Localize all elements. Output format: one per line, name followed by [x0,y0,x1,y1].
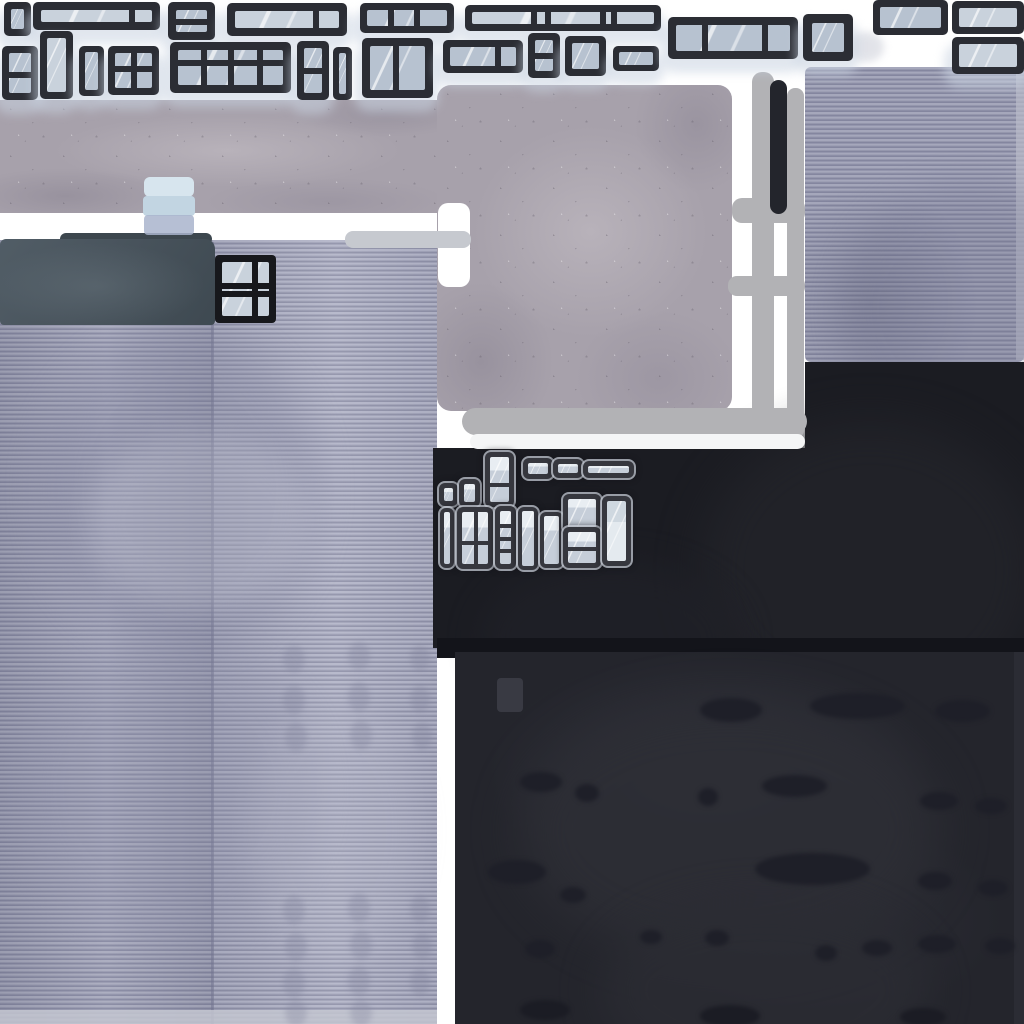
window-sprite [333,47,352,100]
window-glass [472,12,654,24]
window-sprite [952,37,1024,74]
siding-rivet-spot [350,720,372,750]
window-mullion-vertical [531,12,537,24]
siding-rivet-spot [410,685,430,713]
window-sprite [803,14,853,61]
window-mullion-horizontal [500,524,511,528]
siding-shading [90,430,310,610]
window-glass [85,52,98,90]
texture-atlas-canvas [0,0,1024,1024]
asphalt-blob [815,945,837,961]
window-glass [676,25,790,51]
window-glass [544,516,559,564]
window-sprite [952,1,1024,34]
asphalt-blob [520,772,562,792]
window-mullion-horizontal [500,549,511,553]
window-mullion-vertical [228,50,234,85]
asphalt-blob [525,940,555,958]
window-sprite [613,46,659,71]
window-glass [558,464,578,473]
window-mullion-vertical [257,50,263,85]
window-sprite [297,41,329,100]
asphalt-blob [918,935,956,953]
small-window-sprite [440,508,454,568]
window-sprite [873,0,948,35]
siding-rivet-spot [348,642,370,670]
asphalt-blob [985,938,1015,954]
window-sprite [443,40,523,73]
siding-rivet-spot [283,645,305,673]
window-sprite [362,38,433,98]
rooftop-unit-mid [143,196,195,216]
siding-rivet-spot [348,893,370,923]
window-glass [339,53,346,94]
window-sprite [108,46,159,95]
window-glass [444,512,450,564]
window-mullion-horizontal [9,72,31,78]
siding-rivet-spot [283,685,305,715]
concrete-band-top-left [0,100,437,213]
window-glass [880,7,941,28]
asphalt-blob [700,698,762,722]
window-mullion-horizontal [462,541,488,545]
small-window-sprite [602,496,631,566]
window-glass [235,11,339,28]
asphalt-blob [762,775,827,797]
siding-rivet-spot [350,930,372,960]
window-glass [568,499,596,528]
asphalt-blob [862,940,892,956]
window-sprite [168,2,215,40]
window-sprite [170,42,291,93]
window-mullion-vertical [414,10,420,26]
small-window-sprite [457,507,493,569]
window-mullion-vertical [611,12,617,24]
window-mullion-vertical [201,50,207,85]
asphalt-right-edge [1014,652,1024,1024]
asphalt-blob [520,1000,570,1020]
siding-rivet-spot [410,645,430,671]
window-glass [464,484,475,502]
small-window-sprite [523,458,553,479]
window-glass [222,262,269,316]
dark-slab [0,239,215,325]
window-mullion-horizontal [178,60,283,66]
window-mullion-vertical [393,46,399,90]
asphalt-blob [935,700,990,722]
rooftop-unit-base [144,215,194,235]
window-sprite [40,31,73,99]
window-sprite [465,5,661,31]
window-mullion-vertical [495,47,501,66]
window-glass [588,466,629,473]
window-mullion-horizontal [304,68,322,74]
window-mullion-vertical [313,11,319,28]
siding-rivet-spot [283,968,305,998]
window-mullion-horizontal [222,283,269,289]
asphalt-blob [755,853,870,885]
window-glass [450,47,516,66]
window-sprite [528,33,560,78]
siding-rivet-spot [348,682,370,712]
window-glass [619,52,653,65]
small-window-sprite [439,483,458,506]
window-mullion-vertical [762,25,768,51]
small-window-sprite [583,461,634,478]
window-mullion-horizontal [490,483,509,487]
window-glass [490,457,509,502]
siding-rivet-spot [410,895,430,923]
painted-bar-black [770,80,787,214]
window-mullion-vertical [388,10,394,26]
asphalt-blob [978,880,1008,896]
painted-bar-vertical-right [787,88,804,438]
window-sprite [565,36,606,76]
window-glass [11,9,24,29]
window-sprite [360,3,454,33]
window-glass [959,44,1017,67]
window-sprite [668,17,798,59]
window-sprite [33,2,160,30]
asphalt-blob [918,872,952,890]
asphalt-blob [488,860,546,884]
window-sprite [227,3,347,36]
window-mullion-horizontal [176,19,207,25]
painted-bar-cross-lower [728,276,805,296]
window-mullion-vertical [702,25,708,51]
window-glass [522,511,534,566]
asphalt-blob [810,693,905,719]
window-glass [572,43,599,69]
window-mullion-vertical [129,10,135,22]
siding-rivet-spot [285,1000,307,1024]
window-glass [607,501,626,561]
siding-rivet-spot [283,895,305,925]
window-mullion-vertical [252,262,258,316]
window-glass [444,488,453,501]
window-glass [959,8,1017,27]
siding-rivet-spot [412,722,432,750]
small-window-sprite [459,479,480,507]
asphalt-blob [575,784,599,802]
window-mullion-vertical [474,512,478,564]
window-mullion-vertical [545,12,551,24]
window-mullion-horizontal [535,53,553,59]
rooftop-unit-top [144,177,194,197]
window-mullion-horizontal [115,66,152,72]
asphalt-blob [640,930,662,944]
window-mullion-horizontal [568,547,596,551]
small-window-sprite [553,459,583,478]
painted-bar-cross-upper [732,198,805,223]
small-window-sprite [485,452,514,507]
window-glass [41,10,152,22]
small-window-sprite [518,507,538,570]
siding-rivet-spot [412,932,432,960]
grey-bar-small [345,231,471,248]
window-glass [528,463,548,474]
asphalt-blob [900,1008,946,1024]
asphalt-blob [975,798,1007,814]
siding-rivet-spot [285,932,307,962]
siding-rivet-spot [285,722,307,752]
concrete-slab-large [437,85,732,411]
siding-rivet-spot [410,968,430,996]
small-window-sprite [563,527,601,568]
window-on-siding [215,255,276,323]
window-mullion-horizontal [500,537,511,541]
window-mullion-vertical [600,12,606,24]
window-glass [367,10,447,26]
white-strip-bottom [470,434,805,449]
siding-rivet-spot [348,966,370,996]
window-glass [812,23,844,52]
asphalt-blob [705,930,729,946]
asphalt-blob [700,1005,760,1024]
small-window-sprite [540,512,563,568]
window-glass [47,38,66,92]
asphalt-blob [920,792,958,810]
asphalt-blob [698,788,718,806]
asphalt-light-wedge [497,678,523,712]
siding-shading [250,700,420,960]
asphalt-blob [560,887,586,903]
window-mullion-horizontal [222,291,269,297]
siding-rivet-spot [350,1000,372,1024]
small-window-sprite [495,506,516,569]
